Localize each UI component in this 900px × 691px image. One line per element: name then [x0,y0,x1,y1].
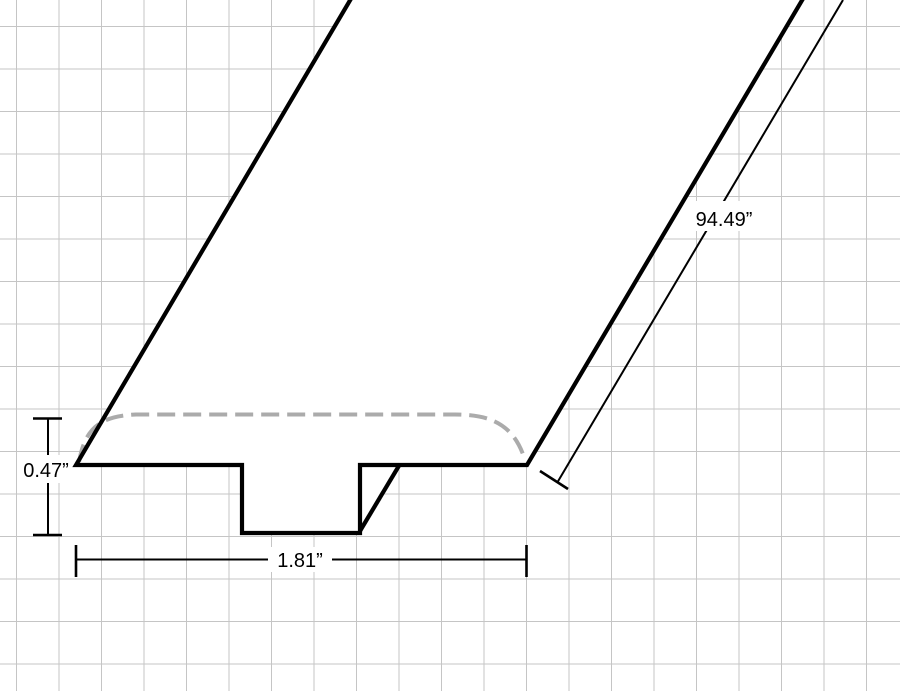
length-dimension-label: 94.49” [696,209,753,231]
drawing-canvas: 0.47” 1.81” 94.49” [0,0,900,691]
technical-drawing: 0.47” 1.81” 94.49” [0,0,900,691]
height-dimension-label: 0.47” [23,460,69,482]
width-dimension-label: 1.81” [277,550,323,572]
